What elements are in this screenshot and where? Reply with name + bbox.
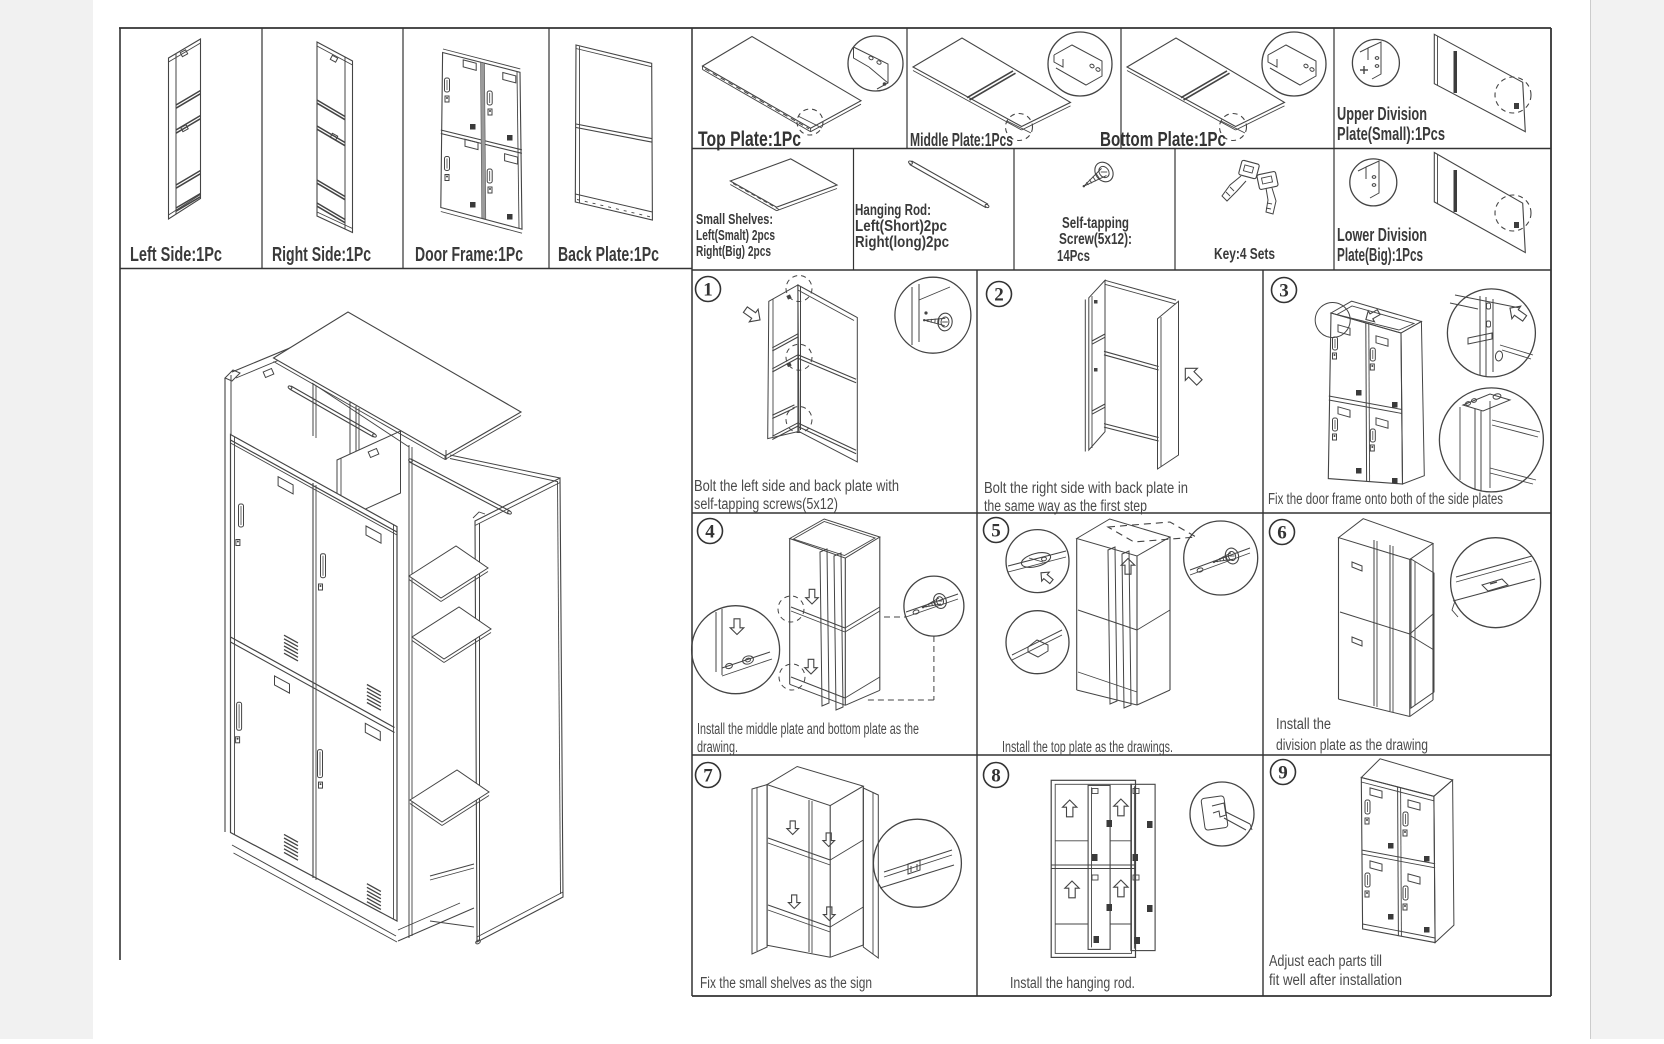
svg-text:7: 7 [703, 766, 713, 787]
svg-text:Middle Plate:1Pcs: Middle Plate:1Pcs [910, 130, 1013, 150]
svg-text:Top Plate:1Pc: Top Plate:1Pc [698, 128, 801, 151]
svg-text:Fix the small shelves as the s: Fix the small shelves as the sign [700, 975, 872, 992]
svg-text:5: 5 [991, 521, 1001, 542]
svg-text:Install the hanging rod.: Install the hanging rod. [1010, 975, 1135, 992]
svg-text:9: 9 [1278, 763, 1288, 784]
svg-text:6: 6 [1277, 523, 1287, 544]
svg-text:Install the middle plate and b: Install the middle plate and bottom plat… [697, 721, 919, 738]
svg-text:Install the top plate as the d: Install the top plate as the drawings. [1002, 739, 1173, 756]
svg-text:1: 1 [703, 280, 713, 301]
svg-text:4: 4 [705, 522, 715, 543]
svg-text:Lower Division: Lower Division [1337, 225, 1427, 245]
svg-text:Left Side:1Pc: Left Side:1Pc [130, 244, 222, 266]
svg-text:Left(Short)2pc: Left(Short)2pc [855, 218, 947, 235]
svg-text:Fix the door frame onto both o: Fix the door frame onto both of the side… [1268, 491, 1503, 508]
svg-text:division plate as the drawing: division plate as the drawing [1276, 737, 1428, 754]
svg-text:Right(Big) 2pcs: Right(Big) 2pcs [696, 243, 771, 260]
svg-text:Back Plate:1Pc: Back Plate:1Pc [558, 244, 659, 266]
svg-text:Bolt the left side and back pl: Bolt the left side and back plate with [694, 478, 899, 495]
svg-text:3: 3 [1279, 281, 1289, 302]
svg-text:Upper Division: Upper Division [1337, 104, 1427, 124]
svg-text:Bolt the right side with back: Bolt the right side with back plate in [984, 480, 1188, 497]
svg-text:8: 8 [991, 766, 1001, 787]
svg-text:Hanging Rod:: Hanging Rod: [855, 202, 931, 219]
svg-text:Adjust each parts till: Adjust each parts till [1269, 953, 1382, 970]
svg-text:the same way as the first step: the same way as the first step [984, 498, 1147, 515]
svg-text:self-tapping screws(5x12): self-tapping screws(5x12) [694, 496, 838, 513]
svg-text:drawing.: drawing. [697, 739, 738, 756]
svg-text:Screw(5x12):: Screw(5x12): [1059, 231, 1132, 248]
svg-text:Plate(Small):1Pcs: Plate(Small):1Pcs [1337, 124, 1445, 144]
svg-text:Small Shelves:: Small Shelves: [696, 211, 773, 228]
svg-text:Bottom Plate:1Pc: Bottom Plate:1Pc [1100, 129, 1226, 151]
svg-text:Door Frame:1Pc: Door Frame:1Pc [415, 244, 523, 266]
svg-text:Install the: Install the [1276, 716, 1331, 733]
svg-text:Plate(Big):1Pcs: Plate(Big):1Pcs [1337, 245, 1423, 265]
svg-text:Key:4 Sets: Key:4 Sets [1214, 246, 1275, 263]
svg-text:Left(Smalt) 2pcs: Left(Smalt) 2pcs [696, 227, 775, 244]
svg-text:Self-tapping: Self-tapping [1062, 215, 1129, 232]
svg-text:14Pcs: 14Pcs [1057, 248, 1090, 265]
svg-text:Right(long)2pc: Right(long)2pc [855, 234, 949, 251]
svg-text:2: 2 [994, 285, 1004, 306]
svg-text:fit well after installation: fit well after installation [1269, 972, 1402, 989]
svg-text:Right Side:1Pc: Right Side:1Pc [272, 244, 371, 266]
